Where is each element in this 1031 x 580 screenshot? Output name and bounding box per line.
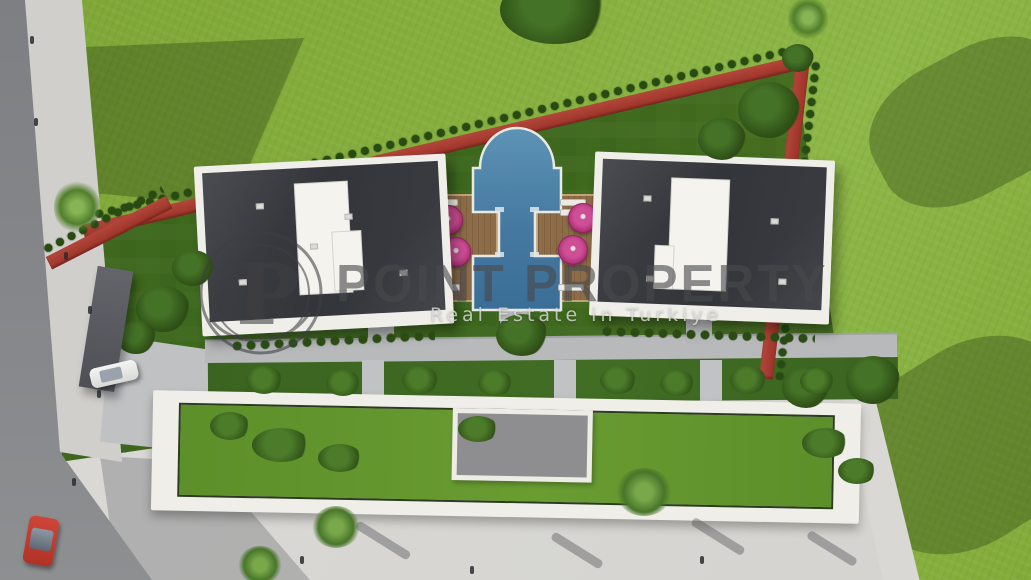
- palm-tree: [54, 180, 100, 234]
- pedestrian: [72, 478, 76, 486]
- villa-left: [194, 154, 455, 337]
- bush: [252, 428, 310, 462]
- car-windows: [99, 366, 123, 383]
- roof-vent: [256, 203, 264, 209]
- roof-vent: [643, 195, 651, 201]
- roof-vent: [239, 279, 247, 285]
- pedestrian: [30, 36, 34, 44]
- aerial-render: P POINT PROPERTY Real Estate in Turkiye: [0, 0, 1031, 580]
- car-windows: [29, 527, 54, 552]
- roof-vent: [399, 270, 407, 276]
- bush: [846, 356, 900, 404]
- tree: [172, 250, 214, 286]
- bush: [478, 370, 512, 396]
- sun-lounger: [558, 284, 584, 291]
- pedestrian: [700, 556, 704, 564]
- roof-terrace-wing: [332, 231, 363, 290]
- bush: [496, 314, 548, 356]
- bush: [782, 44, 814, 72]
- bush: [730, 366, 766, 394]
- roof-terrace: [668, 178, 729, 290]
- bush: [402, 366, 438, 394]
- roof-vent: [310, 243, 318, 249]
- bush: [802, 428, 848, 458]
- garden-path: [554, 360, 576, 402]
- palm-tree: [616, 468, 672, 516]
- roof-vent: [771, 218, 779, 224]
- roof-vent: [778, 279, 786, 285]
- lower-building-roof: [151, 390, 861, 524]
- garden-path: [700, 360, 722, 402]
- tree: [698, 118, 746, 160]
- bush: [458, 416, 498, 442]
- bush: [326, 370, 360, 396]
- palm-tree: [312, 506, 360, 548]
- bush: [210, 412, 250, 440]
- bush: [246, 366, 282, 394]
- roof-vent: [344, 213, 352, 219]
- pedestrian: [300, 556, 304, 564]
- bush: [800, 368, 834, 394]
- palm-tree: [238, 546, 282, 580]
- pedestrian: [470, 566, 474, 574]
- bush: [838, 458, 876, 484]
- tree: [738, 82, 800, 138]
- roof-terrace-wing: [654, 246, 674, 289]
- pedestrian: [97, 390, 101, 398]
- pedestrian: [64, 252, 68, 260]
- villa-right: [589, 151, 835, 324]
- pool-umbrella: [558, 235, 588, 265]
- roof-vent: [646, 276, 654, 282]
- pedestrian: [88, 306, 92, 314]
- bush: [660, 370, 694, 396]
- bush: [600, 366, 636, 394]
- pedestrian: [34, 118, 38, 126]
- bush: [318, 444, 362, 472]
